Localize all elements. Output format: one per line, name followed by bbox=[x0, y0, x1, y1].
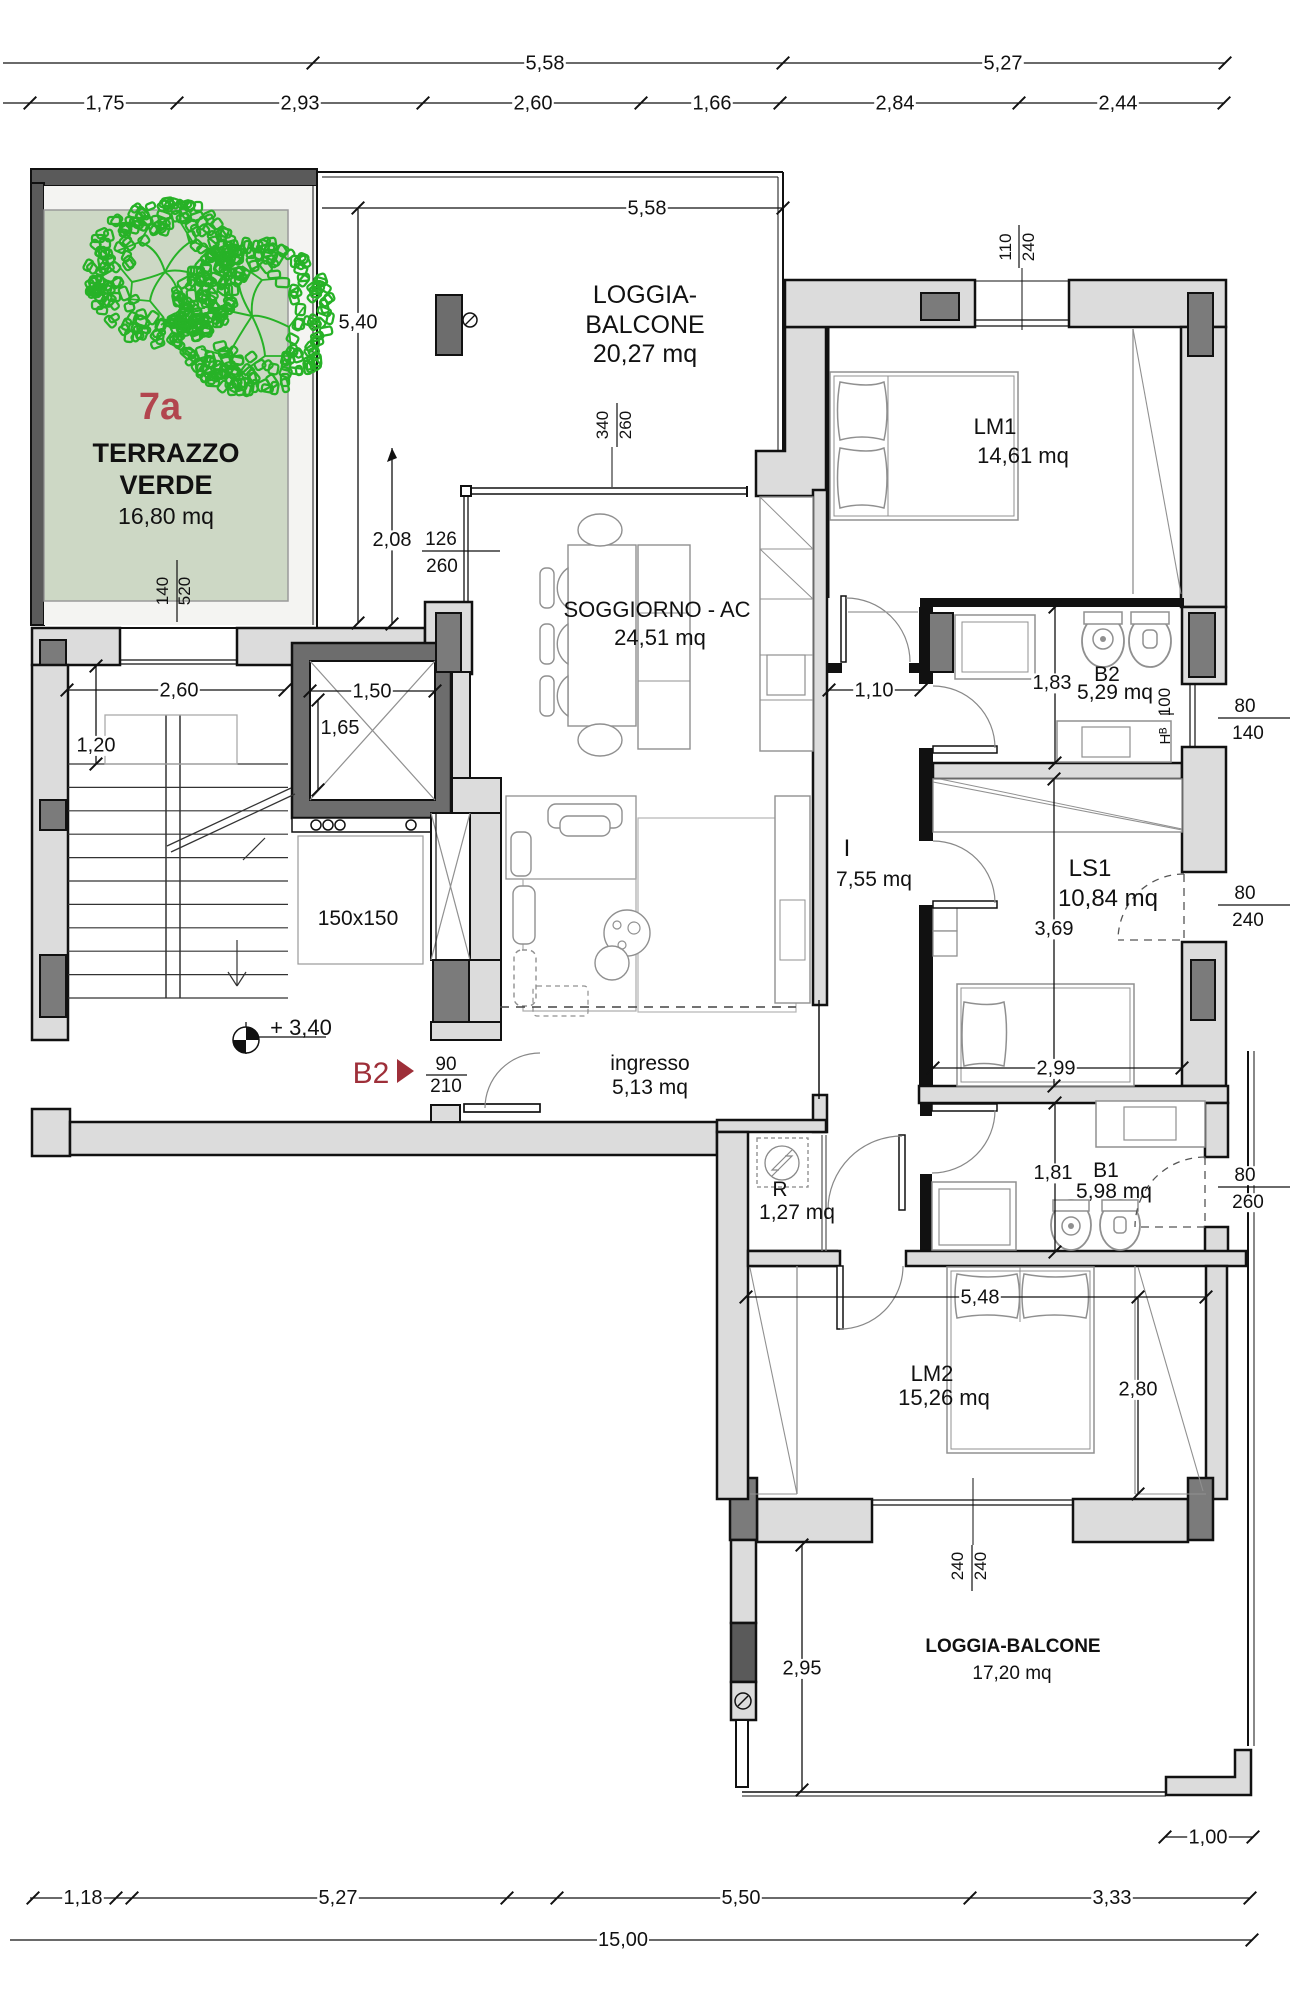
svg-text:+ 3,40: + 3,40 bbox=[270, 1015, 332, 1040]
svg-text:110: 110 bbox=[996, 233, 1015, 260]
svg-text:5,29 mq: 5,29 mq bbox=[1077, 681, 1153, 704]
svg-text:260: 260 bbox=[616, 411, 635, 439]
svg-text:VERDE: VERDE bbox=[119, 470, 212, 500]
svg-text:BALCONE: BALCONE bbox=[585, 311, 704, 339]
svg-text:1,27 mq: 1,27 mq bbox=[759, 1201, 835, 1224]
svg-text:2,99: 2,99 bbox=[1037, 1058, 1076, 1080]
svg-text:LOGGIA-: LOGGIA- bbox=[593, 281, 697, 309]
svg-text:5,58: 5,58 bbox=[526, 53, 565, 75]
svg-text:2,08: 2,08 bbox=[373, 529, 412, 551]
svg-text:210: 210 bbox=[430, 1076, 462, 1097]
svg-text:100: 100 bbox=[1155, 688, 1174, 716]
svg-text:1,10: 1,10 bbox=[855, 680, 894, 702]
svg-text:7,55 mq: 7,55 mq bbox=[836, 868, 912, 891]
svg-text:24,51 mq: 24,51 mq bbox=[614, 625, 706, 650]
svg-text:B2: B2 bbox=[353, 1057, 390, 1090]
svg-text:2,60: 2,60 bbox=[160, 680, 199, 702]
svg-text:140: 140 bbox=[1232, 723, 1264, 744]
svg-text:15,00: 15,00 bbox=[598, 1929, 648, 1951]
svg-text:5,50: 5,50 bbox=[722, 1887, 761, 1909]
svg-text:5,58: 5,58 bbox=[628, 198, 667, 220]
svg-text:R: R bbox=[772, 1178, 787, 1201]
svg-text:260: 260 bbox=[426, 556, 458, 577]
svg-text:ingresso: ingresso bbox=[610, 1052, 689, 1075]
svg-text:5,40: 5,40 bbox=[339, 312, 378, 334]
svg-text:150x150: 150x150 bbox=[318, 907, 399, 930]
svg-text:2,80: 2,80 bbox=[1119, 1379, 1158, 1401]
svg-text:LM1: LM1 bbox=[974, 414, 1017, 439]
svg-text:140: 140 bbox=[153, 577, 172, 605]
svg-text:16,80 mq: 16,80 mq bbox=[118, 503, 214, 529]
svg-text:B1: B1 bbox=[1093, 1159, 1119, 1182]
svg-text:2,93: 2,93 bbox=[281, 93, 320, 115]
svg-text:2,44: 2,44 bbox=[1099, 93, 1138, 115]
svg-text:1,50: 1,50 bbox=[353, 681, 392, 703]
svg-text:I: I bbox=[844, 835, 851, 862]
svg-text:3,33: 3,33 bbox=[1093, 1887, 1132, 1909]
svg-text:1,18: 1,18 bbox=[64, 1887, 103, 1909]
svg-text:17,20 mq: 17,20 mq bbox=[972, 1663, 1051, 1684]
svg-text:1,65: 1,65 bbox=[321, 717, 360, 739]
svg-text:15,26 mq: 15,26 mq bbox=[898, 1385, 990, 1410]
svg-text:240: 240 bbox=[1019, 233, 1038, 261]
svg-text:240: 240 bbox=[971, 1552, 990, 1580]
svg-text:5,13 mq: 5,13 mq bbox=[612, 1076, 688, 1099]
svg-text:SOGGIORNO - AC: SOGGIORNO - AC bbox=[563, 597, 750, 622]
svg-text:10,84 mq: 10,84 mq bbox=[1058, 885, 1158, 912]
svg-text:5,27: 5,27 bbox=[984, 53, 1023, 75]
svg-text:LM2: LM2 bbox=[911, 1361, 954, 1386]
svg-text:126: 126 bbox=[425, 529, 457, 550]
svg-text:80: 80 bbox=[1234, 1165, 1255, 1186]
svg-text:5,98 mq: 5,98 mq bbox=[1076, 1180, 1152, 1203]
svg-text:5,48: 5,48 bbox=[961, 1287, 1000, 1309]
svg-text:2,60: 2,60 bbox=[514, 93, 553, 115]
svg-text:240: 240 bbox=[948, 1552, 967, 1580]
svg-text:90: 90 bbox=[435, 1054, 456, 1075]
svg-text:80: 80 bbox=[1234, 883, 1255, 904]
svg-text:1,66: 1,66 bbox=[693, 93, 732, 115]
svg-text:1,75: 1,75 bbox=[86, 93, 125, 115]
svg-text:1,83: 1,83 bbox=[1033, 672, 1072, 694]
svg-text:3,69: 3,69 bbox=[1035, 918, 1074, 940]
svg-text:1,20: 1,20 bbox=[77, 735, 116, 757]
svg-text:5,27: 5,27 bbox=[319, 1887, 358, 1909]
svg-text:520: 520 bbox=[175, 577, 194, 605]
svg-text:LOGGIA-BALCONE: LOGGIA-BALCONE bbox=[925, 1636, 1100, 1657]
svg-text:TERRAZZO: TERRAZZO bbox=[93, 438, 240, 468]
svg-text:340: 340 bbox=[593, 411, 612, 439]
svg-text:240: 240 bbox=[1232, 910, 1264, 931]
svg-text:20,27 mq: 20,27 mq bbox=[593, 340, 697, 368]
svg-text:80: 80 bbox=[1234, 696, 1255, 717]
svg-text:2,95: 2,95 bbox=[783, 1658, 822, 1680]
svg-text:1,81: 1,81 bbox=[1034, 1162, 1073, 1184]
svg-text:2,84: 2,84 bbox=[876, 93, 915, 115]
svg-text:14,61 mq: 14,61 mq bbox=[977, 443, 1069, 468]
svg-text:7a: 7a bbox=[139, 386, 182, 428]
svg-text:260: 260 bbox=[1232, 1192, 1264, 1213]
svg-text:1,00: 1,00 bbox=[1189, 1827, 1228, 1849]
svg-text:LS1: LS1 bbox=[1069, 855, 1112, 882]
svg-text:Hᴮ: Hᴮ bbox=[1157, 727, 1174, 744]
